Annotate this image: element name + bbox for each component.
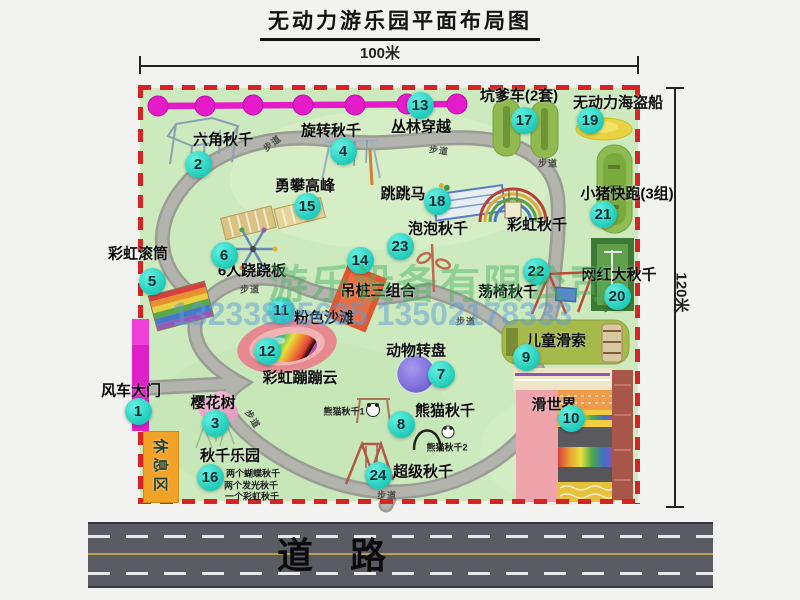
park-layout-map: 无动力游乐园平面布局图 100米 120米 — [0, 0, 800, 600]
footpath-label-6: 步道 — [377, 489, 397, 502]
road: 道路 — [88, 522, 713, 588]
footpath-label-3: 步道 — [240, 283, 260, 296]
dimension-tick — [637, 56, 639, 74]
dimension-tick — [666, 506, 684, 508]
attraction-label-1: 风车大门 — [101, 380, 161, 401]
attraction-label-21: 小猪快跑(3组) — [580, 183, 673, 204]
attraction-label-18: 跳跳马 — [380, 183, 425, 204]
attraction-label-24: 超级秋千 — [393, 461, 453, 482]
boundary-top — [138, 85, 640, 90]
road-label: 道路 — [277, 527, 423, 579]
sub-label-4: 一个彩虹秋千 — [225, 490, 279, 503]
dimension-tick — [139, 56, 141, 74]
boundary-right — [635, 85, 640, 504]
marker-5: 5 — [139, 268, 166, 295]
dimension-line-top — [140, 65, 638, 67]
attraction-label-2: 六角秋千 — [193, 129, 253, 150]
attraction-label-4: 旋转秋千 — [301, 120, 361, 141]
dimension-tick — [666, 87, 684, 89]
marker-7: 7 — [428, 361, 455, 388]
attraction-label-5: 彩虹滚筒 — [108, 243, 168, 264]
rest-area-label: 休息区 — [151, 438, 172, 495]
attraction-label-12: 彩虹蹦蹦云 — [262, 367, 337, 388]
marker-1: 1 — [125, 398, 152, 425]
marker-18: 18 — [424, 188, 451, 215]
footpath-label-2: 步道 — [538, 157, 558, 170]
marker-13: 13 — [407, 92, 434, 119]
page-title: 无动力游乐园平面布局图 — [0, 5, 800, 41]
dimension-label-height: 120米 — [672, 272, 693, 312]
attraction-label-7: 动物转盘 — [386, 340, 446, 361]
sub-label-0: 熊猫秋千1 — [323, 405, 364, 418]
attraction-label-16: 秋千乐园 — [200, 445, 260, 466]
attraction-label-17: 坑爹车(2套) — [480, 85, 558, 106]
footpath-label-1: 步道 — [428, 142, 450, 158]
sub-label-1: 熊猫秋千2 — [426, 441, 467, 454]
marker-8: 8 — [388, 411, 415, 438]
attraction-label-8: 熊猫秋千 — [415, 400, 475, 421]
marker-6: 6 — [211, 242, 238, 269]
marker-19: 19 — [577, 107, 604, 134]
rest-area-zone: 休息区 — [143, 431, 179, 503]
marker-17: 17 — [511, 107, 538, 134]
marker-15: 15 — [294, 193, 321, 220]
attraction-label-23: 泡泡秋千 — [408, 218, 468, 239]
marker-3: 3 — [202, 410, 229, 437]
attraction-label-x: 彩虹秋千 — [507, 214, 567, 235]
watermark-phone: 13233805635 13502178333 — [172, 296, 572, 333]
marker-4: 4 — [330, 138, 357, 165]
marker-16: 16 — [197, 464, 224, 491]
marker-9: 9 — [513, 344, 540, 371]
dimension-label-width: 100米 — [330, 42, 430, 63]
attraction-label-13: 丛林穿越 — [391, 116, 451, 137]
marker-21: 21 — [590, 201, 617, 228]
marker-24: 24 — [365, 462, 392, 489]
marker-10: 10 — [558, 405, 585, 432]
marker-2: 2 — [185, 151, 212, 178]
marker-12: 12 — [254, 338, 281, 365]
